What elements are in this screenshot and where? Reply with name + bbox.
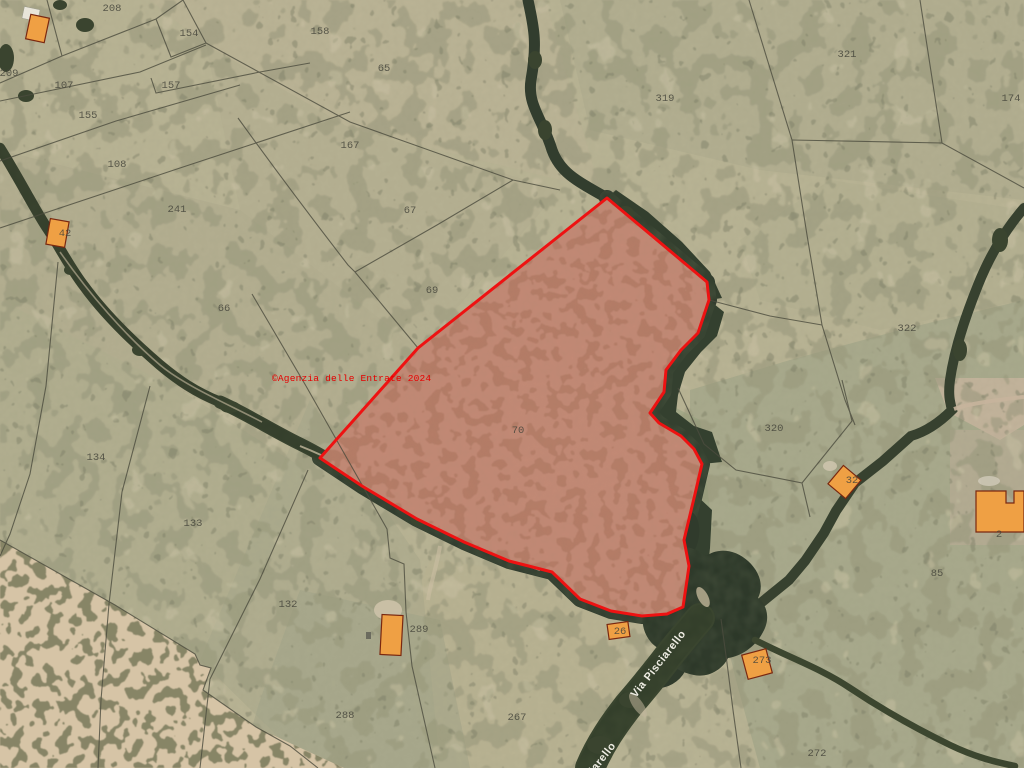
svg-text:155: 155 (79, 110, 98, 122)
svg-text:67: 67 (404, 205, 417, 217)
svg-text:209: 209 (0, 68, 18, 80)
svg-text:174: 174 (1002, 93, 1021, 105)
svg-text:157: 157 (162, 80, 181, 92)
svg-text:267: 267 (508, 712, 527, 724)
svg-text:322: 322 (898, 323, 917, 335)
svg-text:66: 66 (218, 303, 231, 315)
svg-text:241: 241 (168, 204, 187, 216)
svg-text:70: 70 (512, 425, 525, 437)
svg-text:42: 42 (59, 228, 72, 240)
svg-text:108: 108 (108, 159, 127, 171)
svg-text:288: 288 (336, 710, 355, 722)
svg-text:208: 208 (103, 3, 122, 15)
svg-text:132: 132 (279, 599, 298, 611)
svg-text:26: 26 (614, 626, 627, 638)
svg-text:85: 85 (931, 568, 944, 580)
svg-text:321: 321 (838, 49, 857, 61)
svg-text:65: 65 (378, 63, 391, 75)
svg-text:289: 289 (410, 624, 429, 636)
svg-text:154: 154 (180, 28, 199, 40)
svg-text:167: 167 (341, 140, 360, 152)
svg-text:2: 2 (996, 529, 1002, 541)
svg-text:134: 134 (87, 452, 106, 464)
svg-text:107: 107 (55, 80, 74, 92)
svg-text:32: 32 (846, 475, 859, 487)
svg-text:69: 69 (426, 285, 439, 297)
svg-text:158: 158 (311, 26, 330, 38)
svg-text:133: 133 (184, 518, 203, 530)
svg-text:©Agenzia delle Entrate 2024: ©Agenzia delle Entrate 2024 (272, 373, 431, 384)
svg-text:273: 273 (753, 655, 772, 667)
svg-text:319: 319 (656, 93, 675, 105)
svg-text:272: 272 (808, 748, 827, 760)
svg-text:320: 320 (765, 423, 784, 435)
